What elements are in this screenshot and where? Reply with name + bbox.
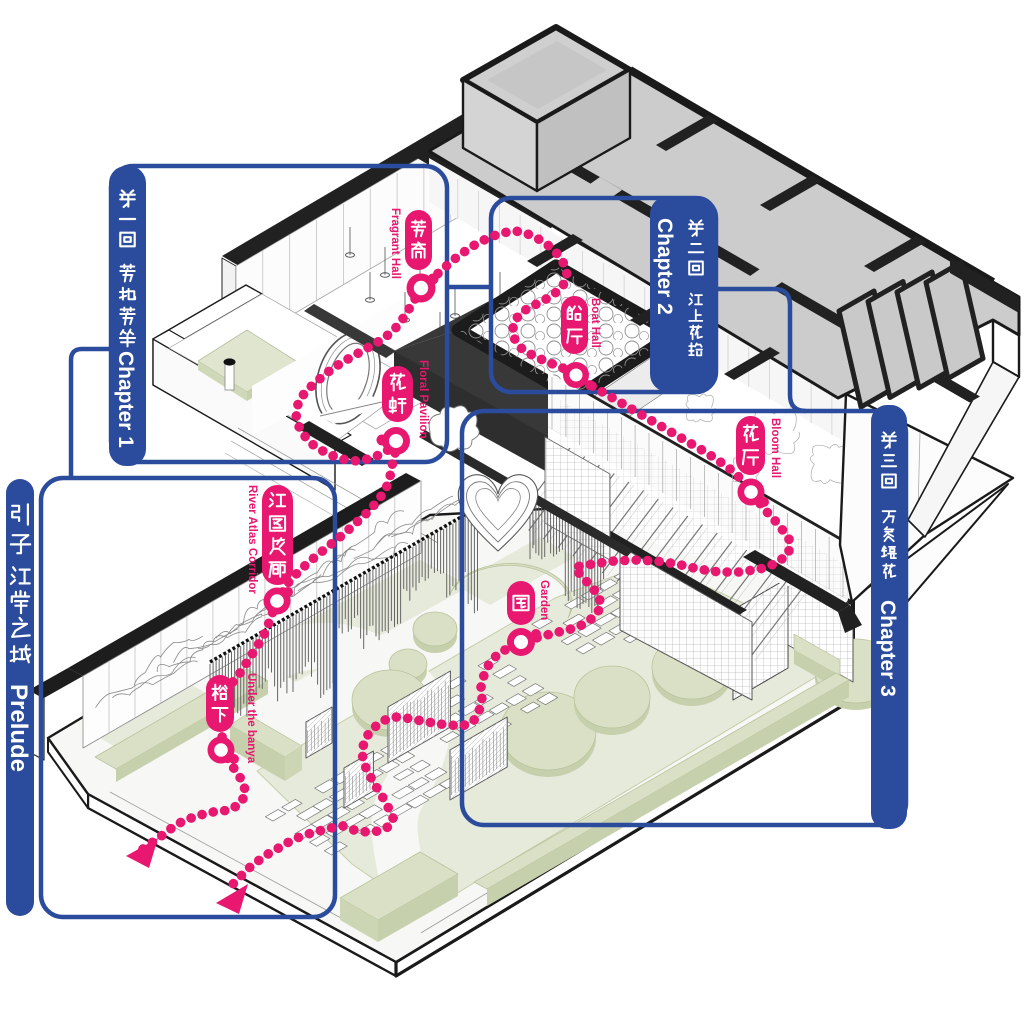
svg-text:Under the banya: Under the banya xyxy=(245,673,257,764)
svg-text:Prelude: Prelude xyxy=(5,684,32,772)
svg-text:Floral Pavilion: Floral Pavilion xyxy=(417,360,429,439)
svg-text:Fragrant Hall: Fragrant Hall xyxy=(389,208,401,279)
svg-text:River Atlas Corridor: River Atlas Corridor xyxy=(246,485,258,594)
svg-text:Boat Hall: Boat Hall xyxy=(589,298,601,348)
svg-text:Chapter 2: Chapter 2 xyxy=(653,218,676,315)
svg-text:Chapter 3: Chapter 3 xyxy=(876,600,899,697)
svg-text:Chapter 1: Chapter 1 xyxy=(114,351,137,448)
svg-text:Garden: Garden xyxy=(538,580,550,620)
svg-text:Bloom Hall: Bloom Hall xyxy=(769,418,781,478)
